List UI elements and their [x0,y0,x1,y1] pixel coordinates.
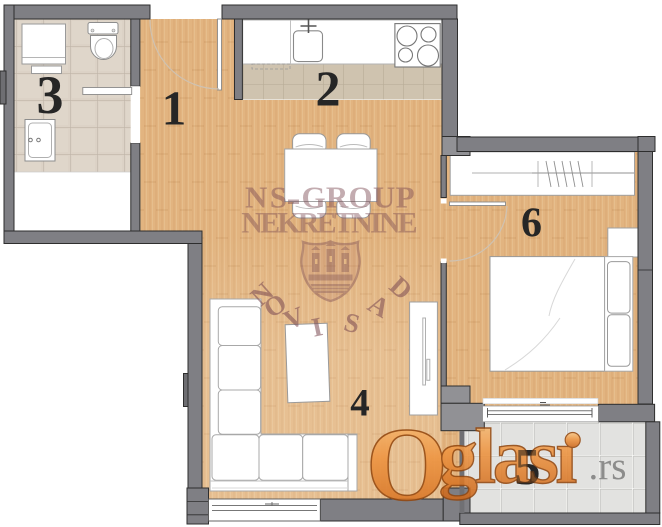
svg-text:glası: glası [439,412,578,499]
svg-text:5: 5 [515,439,541,496]
svg-text:3: 3 [37,65,64,125]
svg-text:1: 1 [162,81,187,136]
svg-text:2: 2 [316,60,341,116]
svg-text:6: 6 [521,201,542,247]
svg-text:O: O [366,406,448,523]
svg-text:.rs: .rs [589,445,627,488]
svg-text:NEKRETNINE: NEKRETNINE [241,206,418,239]
